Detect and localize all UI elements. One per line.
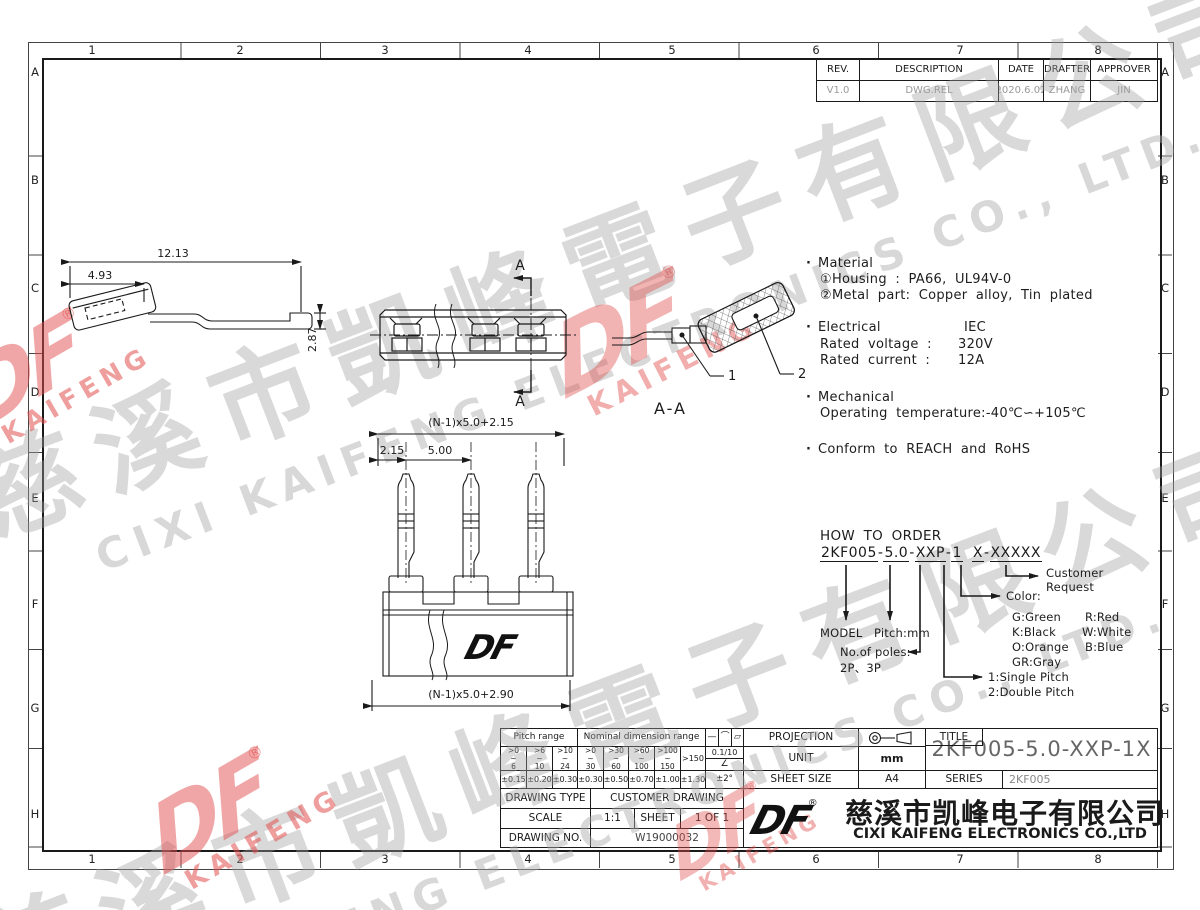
poles-label-2: 2P、3P	[840, 660, 881, 676]
drawing-no-label: DRAWING NO.	[500, 828, 591, 848]
sheet-size-label: SHEET SIZE	[743, 770, 859, 789]
callout-1: 1	[728, 369, 736, 384]
date-value: 2020.6.02	[998, 80, 1044, 102]
approver-header: APPROVER	[1090, 59, 1158, 81]
bullet-icon: ·	[806, 320, 811, 335]
material-line-2: ②Metal part: Copper alloy, Tin plated	[820, 288, 1093, 303]
zone-row-right-b: B	[1161, 173, 1169, 187]
zone-row-left-f: F	[32, 597, 39, 611]
sheet-size-value: A4	[858, 770, 926, 789]
zone-col-bottom-6: 6	[812, 852, 819, 866]
zone-row-left-a: A	[31, 65, 39, 79]
front-view-drawing: (N-1)x5.0+2.15 2.15 5.00 (N-1)x5.0+2.90	[358, 414, 598, 714]
pitch-range-header: Pitch range	[500, 728, 578, 747]
tol-3: ±0.30	[552, 770, 578, 789]
voltage-value: 320V	[958, 337, 993, 352]
range-col-5: >30~60	[603, 746, 629, 771]
sheet-label: SHEET	[634, 808, 681, 829]
zone-col-top-8: 8	[1094, 43, 1101, 57]
zone-row-right-c: C	[1161, 281, 1169, 295]
bullet-icon: ·	[806, 256, 811, 271]
zone-col-top-2: 2	[236, 43, 243, 57]
tol-6: ±0.70	[628, 770, 655, 789]
df-logo-on-part: DF	[466, 628, 513, 668]
color-blue: B:Blue	[1085, 640, 1123, 654]
zone-row-right-f: F	[1162, 597, 1169, 611]
company-logo: DF®	[752, 798, 818, 844]
color-black: K:Black	[1012, 625, 1056, 639]
zone-col-top-5: 5	[668, 43, 675, 57]
zone-col-top-7: 7	[956, 43, 963, 57]
tol-7: ±1.00	[654, 770, 681, 789]
first-angle-projection-icon	[867, 731, 917, 745]
range-col-1: >0~6	[500, 746, 527, 771]
series-value: 2KF005	[1002, 770, 1158, 789]
range-over-150: >150	[680, 746, 706, 771]
drafter-header: DRAFTER	[1043, 59, 1091, 81]
current-value: 12A	[958, 353, 984, 368]
dim-height: 2.87	[306, 328, 319, 353]
zone-ticks-top	[42, 42, 1158, 58]
dim-first: 2.15	[380, 444, 405, 457]
scale-value: 1:1	[590, 808, 635, 829]
voltage-label: Rated voltage :	[820, 337, 932, 352]
drawing-type-label: DRAWING TYPE	[500, 788, 591, 809]
material-title: Material	[818, 256, 873, 271]
bullet-icon: ·	[806, 390, 811, 405]
dim-top: (N-1)x5.0+2.15	[428, 416, 514, 429]
company-name-en: CIXI KAIFENG ELECTRONICS CO.,LTD	[845, 826, 1155, 842]
mechanical-line: Operating temperature:-40℃∽+105℃	[820, 406, 1086, 421]
model-label: MODEL	[820, 626, 863, 640]
tol-2: ±0.20	[526, 770, 553, 789]
range-col-4: >0~30	[577, 746, 604, 771]
drawing-sheet: 慈溪市凱峰電子有限公司 CIXI KAIFENG ELECTRONICS CO.…	[0, 0, 1200, 910]
current-label: Rated current :	[820, 353, 930, 368]
zone-col-top-1: 1	[88, 43, 95, 57]
side-view-drawing: 12.13 4.93 2.87	[58, 240, 328, 380]
projection-symbol-cell	[858, 728, 926, 747]
series-label: SERIES	[925, 770, 1003, 789]
range-col-7: >100~150	[654, 746, 681, 771]
dim-pitch: 5.00	[428, 444, 453, 457]
color-orange: O:Orange	[1012, 640, 1069, 654]
color-title: Color:	[1006, 589, 1041, 603]
color-green: G:Green	[1012, 610, 1061, 624]
customer-label-1: Customer	[1046, 566, 1103, 580]
rev-value: V1.0	[816, 80, 860, 102]
zone-ticks-bottom	[42, 850, 1158, 868]
electrical-title: Electrical	[818, 320, 881, 335]
color-gray: GR:Gray	[1012, 655, 1061, 669]
straightness-symbol: —	[705, 728, 719, 747]
tol-1: ±0.15	[500, 770, 527, 789]
zone-col-bottom-8: 8	[1094, 852, 1101, 866]
dim-bottom: (N-1)x5.0+2.90	[428, 688, 514, 701]
rev-header: REV.	[816, 59, 860, 81]
dim-head: 4.93	[88, 269, 113, 282]
zone-row-left-b: B	[31, 173, 39, 187]
mechanical-title: Mechanical	[818, 390, 894, 405]
tol-over-150: ±1.30	[680, 770, 706, 789]
zone-row-left-e: E	[31, 491, 38, 505]
unit-value: mm	[858, 746, 926, 771]
range-col-2: >6~10	[526, 746, 553, 771]
section-marker-bottom: A	[515, 394, 525, 410]
zone-row-left-d: D	[31, 385, 40, 399]
tol-4: ±0.30	[577, 770, 604, 789]
color-red: R:Red	[1085, 610, 1119, 624]
section-aa-drawing: 1 2 A-A	[612, 278, 822, 423]
pitch-type-2: 2:Double Pitch	[988, 685, 1074, 699]
range-col-6: >60~100	[628, 746, 655, 771]
drawing-no-value: W19000032	[590, 828, 744, 848]
zone-col-bottom-5: 5	[668, 852, 675, 866]
callout-2: 2	[798, 367, 806, 382]
range-col-3: >10~24	[552, 746, 578, 771]
zone-row-left-g: G	[31, 701, 40, 715]
section-label: A-A	[654, 399, 687, 418]
zone-row-left-c: C	[31, 281, 39, 295]
top-view-drawing: A A	[368, 248, 648, 408]
zone-col-bottom-4: 4	[524, 852, 531, 866]
desc-header: DESCRIPTION	[859, 59, 999, 81]
tol-5: ±0.50	[603, 770, 629, 789]
zone-row-left-h: H	[31, 807, 40, 821]
title-label: TITLE	[925, 728, 983, 746]
df-logo-icon: DF	[461, 631, 518, 665]
zone-col-bottom-2: 2	[236, 852, 243, 866]
pitch-label: Pitch:mm	[874, 626, 930, 640]
bullet-icon: ·	[806, 442, 811, 457]
pitch-type-1: 1:Single Pitch	[988, 670, 1069, 684]
poles-label-1: No.of poles:	[840, 645, 911, 659]
zone-col-bottom-1: 1	[88, 852, 95, 866]
zone-row-right-g: G	[1161, 701, 1170, 715]
zone-col-top-6: 6	[812, 43, 819, 57]
material-line-1: ①Housing : PA66, UL94V-0	[820, 272, 1011, 287]
customer-label-2: Request	[1046, 580, 1094, 594]
dim-overall: 12.13	[157, 247, 189, 260]
desc-value: DWG.REL	[859, 80, 999, 102]
drafter-value: ZHANG	[1043, 80, 1091, 102]
zone-col-top-4: 4	[524, 43, 531, 57]
df-logo-icon: DF	[746, 801, 813, 841]
zone-row-right-e: E	[1161, 491, 1168, 505]
section-marker-top: A	[515, 258, 525, 274]
angle-tolerance: ±2°	[705, 770, 744, 789]
approver-value: JIN	[1090, 80, 1158, 102]
date-header: DATE	[998, 59, 1044, 81]
zone-col-top-3: 3	[381, 43, 388, 57]
zone-row-right-d: D	[1161, 385, 1170, 399]
color-white: W:White	[1082, 625, 1131, 639]
zone-col-bottom-3: 3	[381, 852, 388, 866]
projection-label: PROJECTION	[743, 728, 859, 747]
nominal-range-header: Nominal dimension range	[577, 728, 706, 747]
zone-col-bottom-7: 7	[956, 852, 963, 866]
zone-row-right-a: A	[1161, 65, 1169, 79]
conform-line: Conform to REACH and RoHS	[818, 442, 1030, 457]
electrical-std: IEC	[964, 320, 986, 335]
drawing-type-value: CUSTOMER DRAWING	[590, 788, 744, 809]
sheet-value: 1 OF 1	[680, 808, 744, 829]
unit-label: UNIT	[743, 746, 859, 771]
scale-label: SCALE	[500, 808, 591, 829]
arc-symbol: ⌒	[718, 728, 732, 747]
